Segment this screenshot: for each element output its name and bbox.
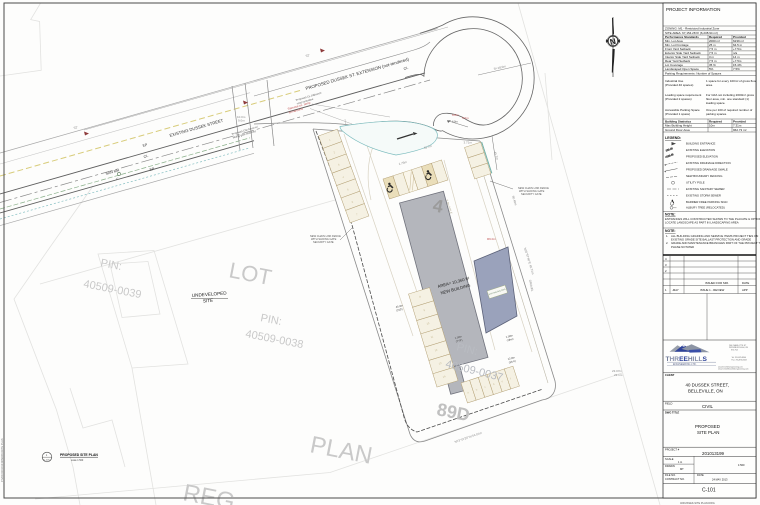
svg-text:DRAWN: DRAWN — [665, 464, 675, 468]
svg-text:PROPOSED DRAINAGE SWALE: PROPOSED DRAINAGE SWALE — [686, 168, 728, 172]
svg-text:FIELD: FIELD — [665, 402, 672, 406]
svg-text:PROPOSED: PROPOSED — [695, 424, 720, 429]
svg-text:EXISTING DRAINAGE DIRECTION: EXISTING DRAINAGE DIRECTION — [686, 161, 731, 165]
svg-text:PROJECT #: PROJECT # — [665, 448, 680, 452]
svg-text:K9J 2V4: K9J 2V4 — [731, 349, 738, 351]
svg-text:NEW BOUNDARY FENCING: NEW BOUNDARY FENCING — [686, 174, 722, 178]
svg-text:Parking Requirements: Number: Parking Requirements: Number of Spaces — [665, 71, 722, 75]
svg-text:(Provided 2 spaces): (Provided 2 spaces) — [665, 97, 692, 101]
svg-text:1.: 1. — [666, 234, 669, 238]
svg-text:BELLEVILLE, ON: BELLEVILLE, ON — [688, 389, 723, 394]
svg-text:APP: APP — [742, 288, 748, 292]
svg-text:BARRIER FREE PARKING SIGN: BARRIER FREE PARKING SIGN — [686, 200, 727, 204]
svg-text:BUILDING ENTRANCE: BUILDING ENTRANCE — [686, 142, 716, 146]
svg-text:1 space for every 100m² of gro: 1 space for every 100m² of gross floor — [706, 79, 757, 83]
svg-text:loading space.: loading space. — [706, 101, 726, 105]
svg-text:DWG TITLE: DWG TITLE — [665, 411, 680, 415]
svg-text:CONTRACT NO.: CONTRACT NO. — [665, 477, 685, 481]
svg-text:EXISTING ELEVATION: EXISTING ELEVATION — [686, 148, 715, 152]
svg-text:SITE PLAN: SITE PLAN — [697, 430, 719, 435]
svg-text:PROPOSED ELEVATION: PROPOSED ELEVATION — [686, 155, 718, 159]
svg-text:10m: 10m — [709, 124, 715, 128]
svg-text:THREEHILLS: THREEHILLS — [666, 356, 708, 363]
svg-text:CLIENT: CLIENT — [665, 373, 675, 377]
svg-text:Landscaped Open Space: Landscaped Open Space — [665, 67, 699, 71]
svg-text:parking spaces.: parking spaces. — [706, 112, 727, 116]
svg-text:SCALE: SCALE — [665, 457, 674, 461]
svg-text:C-101: C-101 — [702, 488, 716, 494]
svg-text:40 DUSSEK STREET,: 40 DUSSEK STREET, — [686, 383, 729, 388]
svg-text:EXISTING STORM SEWER: EXISTING STORM SEWER — [686, 194, 721, 198]
svg-text:24 MAY 2013: 24 MAY 2013 — [712, 478, 728, 482]
svg-text:EXISTING SANITARY SEWER: EXISTING SANITARY SEWER — [686, 187, 725, 191]
svg-text:1:500: 1:500 — [738, 463, 745, 467]
svg-text:MT: MT — [680, 467, 684, 471]
svg-text:LEGEND:: LEGEND: — [665, 136, 681, 140]
svg-text:UTILITY POLE: UTILITY POLE — [686, 181, 705, 185]
svg-text:ISSUE 1 - REVIEW: ISSUE 1 - REVIEW — [700, 288, 725, 292]
svg-text:area.: area. — [706, 83, 713, 87]
svg-text:7.5%: 7.5% — [733, 67, 740, 71]
svg-text:PROJECT INFORMATION: PROJECT INFORMATION — [666, 7, 720, 12]
svg-text:ALBURY TREE (RELOCATED): ALBURY TREE (RELOCATED) — [686, 206, 725, 210]
svg-text:2.: 2. — [666, 241, 669, 245]
svg-text:DATE: DATE — [742, 281, 749, 285]
svg-text:NOTE:: NOTE: — [665, 229, 676, 233]
svg-text:PHASE NOTATED: PHASE NOTATED — [671, 245, 694, 249]
svg-text:Fax: 705-876-8343: Fax: 705-876-8343 — [732, 359, 747, 361]
svg-text:ISSUED FOR SPA: ISSUED FOR SPA — [705, 281, 728, 285]
svg-text:962.73 m²: 962.73 m² — [733, 128, 747, 132]
svg-text:201013199: 201013199 — [702, 451, 725, 456]
svg-text:CIVIL: CIVIL — [702, 404, 714, 409]
svg-text:(Provided 40 spaces): (Provided 40 spaces) — [665, 83, 693, 87]
svg-text:40DUSSEK-SITE PLAN.DWG: 40DUSSEK-SITE PLAN.DWG — [680, 501, 715, 505]
svg-text:5%: 5% — [709, 67, 714, 71]
svg-text:LOCATE LANDSCAPE AS PART IN LA: LOCATE LANDSCAPE AS PART IN LANDSCAPING … — [665, 220, 739, 224]
svg-text:1 in: 1 in — [678, 460, 683, 464]
svg-text:email: info@threehillsengineer: email: info@threehillsengineering.com — [718, 368, 749, 371]
svg-text:(Provided 1 space): (Provided 1 space) — [665, 112, 690, 116]
svg-text:-MAY: -MAY — [672, 288, 679, 292]
svg-text:Ground Floor Area: Ground Floor Area — [665, 128, 690, 132]
